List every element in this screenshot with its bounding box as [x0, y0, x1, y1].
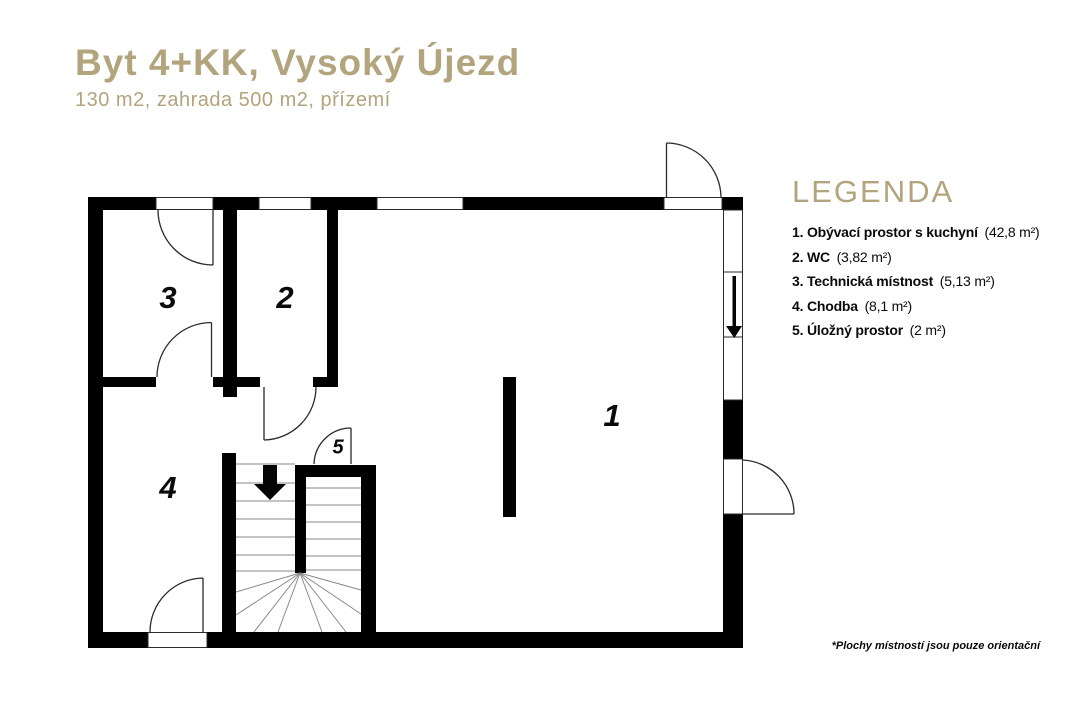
legend-item-label: 1. Obývací prostor s kuchyní — [792, 224, 978, 240]
door-opening-right — [724, 459, 743, 514]
legend-list: 1. Obývací prostor s kuchyní (42,8 m²) 2… — [792, 220, 1062, 343]
door-entrance-top — [667, 143, 722, 197]
wall-stair-newel — [295, 465, 306, 573]
legend: LEGENDA 1. Obývací prostor s kuchyní (42… — [792, 176, 1062, 343]
room-label-3: 3 — [159, 280, 176, 316]
legend-item-area: (3,82 m²) — [837, 249, 892, 265]
legend-item-4: 4. Chodba (8,1 m²) — [792, 294, 1062, 319]
room-label-5: 5 — [332, 437, 343, 460]
floor-plan — [0, 0, 1080, 720]
floor-plan-page: Byt 4+KK, Vysoký Újezd 130 m2, zahrada 5… — [0, 0, 1080, 720]
wall-room2-bottom — [313, 377, 338, 387]
wall-stair-left — [222, 453, 236, 632]
window-right-upper — [724, 210, 743, 272]
footnote: *Plochy místností jsou pouze orientační — [832, 640, 1040, 652]
wall-room2-room1 — [327, 210, 338, 387]
door-right-exterior — [743, 460, 794, 514]
room-label-2: 2 — [276, 280, 293, 316]
legend-item-5: 5. Úložný prostor (2 m²) — [792, 318, 1062, 343]
door-room4-exterior — [150, 578, 203, 632]
entrance-door-opening — [664, 198, 722, 210]
wall-room3-bottom-b — [213, 377, 260, 387]
wall-openings — [148, 198, 743, 648]
wall-left — [88, 197, 103, 648]
legend-item-3: 3. Technická místnost (5,13 m²) — [792, 269, 1062, 294]
legend-item-label: 3. Technická místnost — [792, 273, 933, 289]
wall-stair-right — [361, 465, 376, 632]
interior-walls — [103, 210, 516, 632]
door-room3-top — [158, 210, 213, 265]
door-room2 — [264, 387, 316, 440]
legend-item-area: (2 m²) — [910, 322, 946, 338]
window-room1-top — [377, 198, 463, 210]
legend-item-area: (42,8 m²) — [985, 224, 1040, 240]
legend-item-label: 4. Chodba — [792, 298, 858, 314]
doors — [150, 143, 794, 632]
door-opening-room4-bottom — [148, 633, 207, 648]
door-room3-bottom — [157, 323, 212, 378]
kitchen-partition-wall — [503, 377, 516, 517]
legend-title: LEGENDA — [792, 176, 1062, 207]
window-right-lower — [724, 337, 743, 400]
window-room2 — [259, 198, 311, 210]
wall-room3-room2 — [223, 210, 237, 397]
legend-item-area: (8,1 m²) — [865, 298, 912, 314]
legend-item-2: 2. WC (3,82 m²) — [792, 245, 1062, 270]
room-label-1: 1 — [603, 398, 620, 434]
door-opening-room3-top — [156, 198, 213, 210]
legend-item-label: 5. Úložný prostor — [792, 322, 903, 338]
legend-item-1: 1. Obývací prostor s kuchyní (42,8 m²) — [792, 220, 1062, 245]
legend-item-label: 2. WC — [792, 249, 830, 265]
wall-room3-bottom-a — [103, 377, 156, 387]
legend-item-area: (5,13 m²) — [940, 273, 995, 289]
room-label-4: 4 — [159, 470, 176, 506]
stair-winder-fan — [236, 573, 361, 632]
